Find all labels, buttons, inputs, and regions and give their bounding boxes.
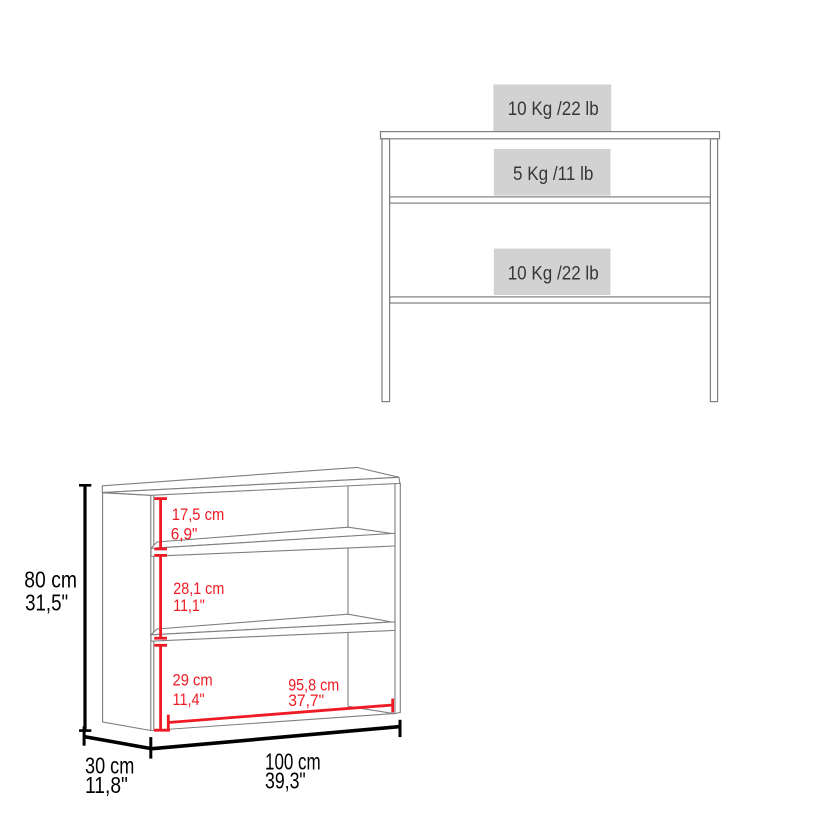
svg-text:5 Kg /11 lb: 5 Kg /11 lb [513,163,593,185]
svg-text:6,9": 6,9" [171,524,198,543]
svg-text:11,8": 11,8" [85,772,128,798]
svg-text:29 cm: 29 cm [173,671,213,690]
svg-text:10 Kg /22 lb: 10 Kg /22 lb [508,262,599,284]
svg-text:11,1": 11,1" [173,596,205,615]
svg-text:39,3": 39,3" [265,768,306,794]
svg-text:11,4": 11,4" [173,690,205,709]
svg-text:17,5 cm: 17,5 cm [172,505,225,524]
svg-text:37,7": 37,7" [288,691,324,710]
svg-text:10 Kg /22 lb: 10 Kg /22 lb [508,98,599,120]
svg-text:31,5": 31,5" [25,590,68,616]
